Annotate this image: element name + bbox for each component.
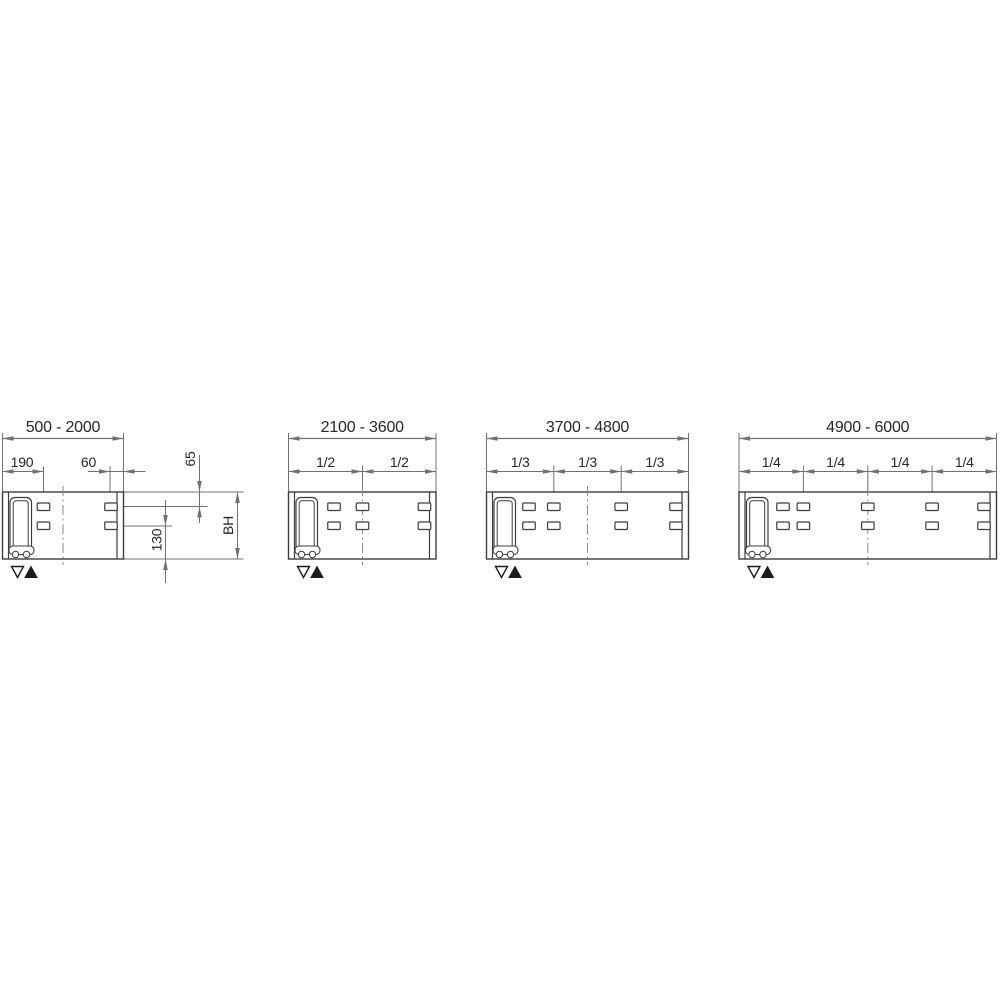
arrowhead-icon [99,469,110,474]
arrowhead-icon [425,469,436,474]
arrowhead-icon [289,436,300,441]
dim-label-BH: BH [220,516,236,535]
fraction-label: 1/2 [390,454,409,470]
arrowhead-icon [113,436,124,441]
fraction-label: 1/4 [762,454,781,470]
roller-wheel [507,551,513,557]
slot [926,522,939,530]
arrowhead-icon [235,492,240,503]
range-label: 2100 - 3600 [321,419,405,436]
slot [670,503,683,511]
slot [797,503,810,511]
arrowhead-icon [678,469,689,474]
roller-wheel [12,551,18,557]
adjust-up-icon [25,567,37,578]
adjust-up-icon [509,567,521,578]
fraction-label: 1/3 [511,454,530,470]
diagram-panel-4900-6000: 4900 - 60001/41/41/41/4 [739,419,997,578]
arrowhead-icon [543,469,554,474]
slot [978,522,991,530]
slot [548,522,561,530]
slot [615,522,628,530]
fraction-label: 1/4 [955,454,974,470]
slot [37,503,50,511]
arrowhead-icon [124,469,135,474]
slot [523,522,536,530]
roller-wheel [309,551,315,557]
arrowhead-icon [621,469,632,474]
arrowhead-icon [163,515,168,526]
slot [356,522,369,530]
slot [37,522,50,530]
slot [105,522,118,530]
adjust-up-icon [762,567,774,578]
arrowhead-icon [610,469,621,474]
slot [926,503,939,511]
arrowhead-icon [792,469,803,474]
fraction-label: 1/4 [826,454,845,470]
arrowhead-icon [197,507,202,518]
arrowhead-icon [425,436,436,441]
slot [797,522,810,530]
range-label: 4900 - 6000 [826,419,910,436]
range-label: 500 - 2000 [26,419,101,436]
dim-label-65: 65 [182,451,198,467]
arrowhead-icon [235,548,240,559]
dim-label-130: 130 [149,528,165,551]
arrowhead-icon [857,469,868,474]
adjust-down-icon [12,567,24,578]
arrowhead-icon [363,469,374,474]
roller-wheel [760,551,766,557]
arrowhead-icon [932,469,943,474]
slot [978,503,991,511]
arrowhead-icon [868,469,879,474]
slot [328,522,341,530]
fraction-label: 1/3 [645,454,664,470]
arrowhead-icon [33,469,44,474]
arrowhead-icon [678,436,689,441]
arrowhead-icon [739,436,750,441]
arrowhead-icon [739,469,750,474]
slot [777,522,790,530]
arrowhead-icon [921,469,932,474]
slot [356,503,369,511]
slot [105,503,118,511]
adjust-down-icon [496,567,508,578]
arrowhead-icon [289,469,300,474]
diagram-panel-3700-4800: 3700 - 48001/31/31/3 [487,419,689,578]
slot [548,503,561,511]
adjust-down-icon [748,567,760,578]
roller-wheel [496,551,502,557]
slot [418,503,431,511]
fraction-label: 1/3 [578,454,597,470]
technical-drawing: 500 - 20001906065130BH2100 - 36001/21/23… [0,0,1000,1000]
drawing-canvas: 500 - 20001906065130BH2100 - 36001/21/23… [0,0,1000,1000]
slot [670,522,683,530]
slot [418,522,431,530]
slot [862,522,875,530]
arrowhead-icon [487,469,498,474]
fraction-label: 1/2 [316,454,335,470]
arrowhead-icon [197,481,202,492]
dim-label-190: 190 [11,454,34,470]
diagram-panel-2100-3600: 2100 - 36001/21/2 [289,419,437,578]
adjust-up-icon [311,567,323,578]
arrowhead-icon [352,469,363,474]
roller-wheel [23,551,29,557]
roller-wheel [298,551,304,557]
arrowhead-icon [3,436,14,441]
dim-label-60: 60 [81,454,97,470]
slot [328,503,341,511]
range-label: 3700 - 4800 [546,419,630,436]
arrowhead-icon [803,469,814,474]
fraction-label: 1/4 [891,454,910,470]
diagram-panel-500-2000: 500 - 20001906065130BH [3,419,244,583]
arrowhead-icon [163,559,168,570]
arrowhead-icon [554,469,565,474]
arrowhead-icon [487,436,498,441]
slot [523,503,536,511]
arrowhead-icon [986,436,997,441]
arrowhead-icon [986,469,997,474]
slot [777,503,790,511]
roller-wheel [749,551,755,557]
slot [862,503,875,511]
slot [615,503,628,511]
adjust-down-icon [298,567,310,578]
